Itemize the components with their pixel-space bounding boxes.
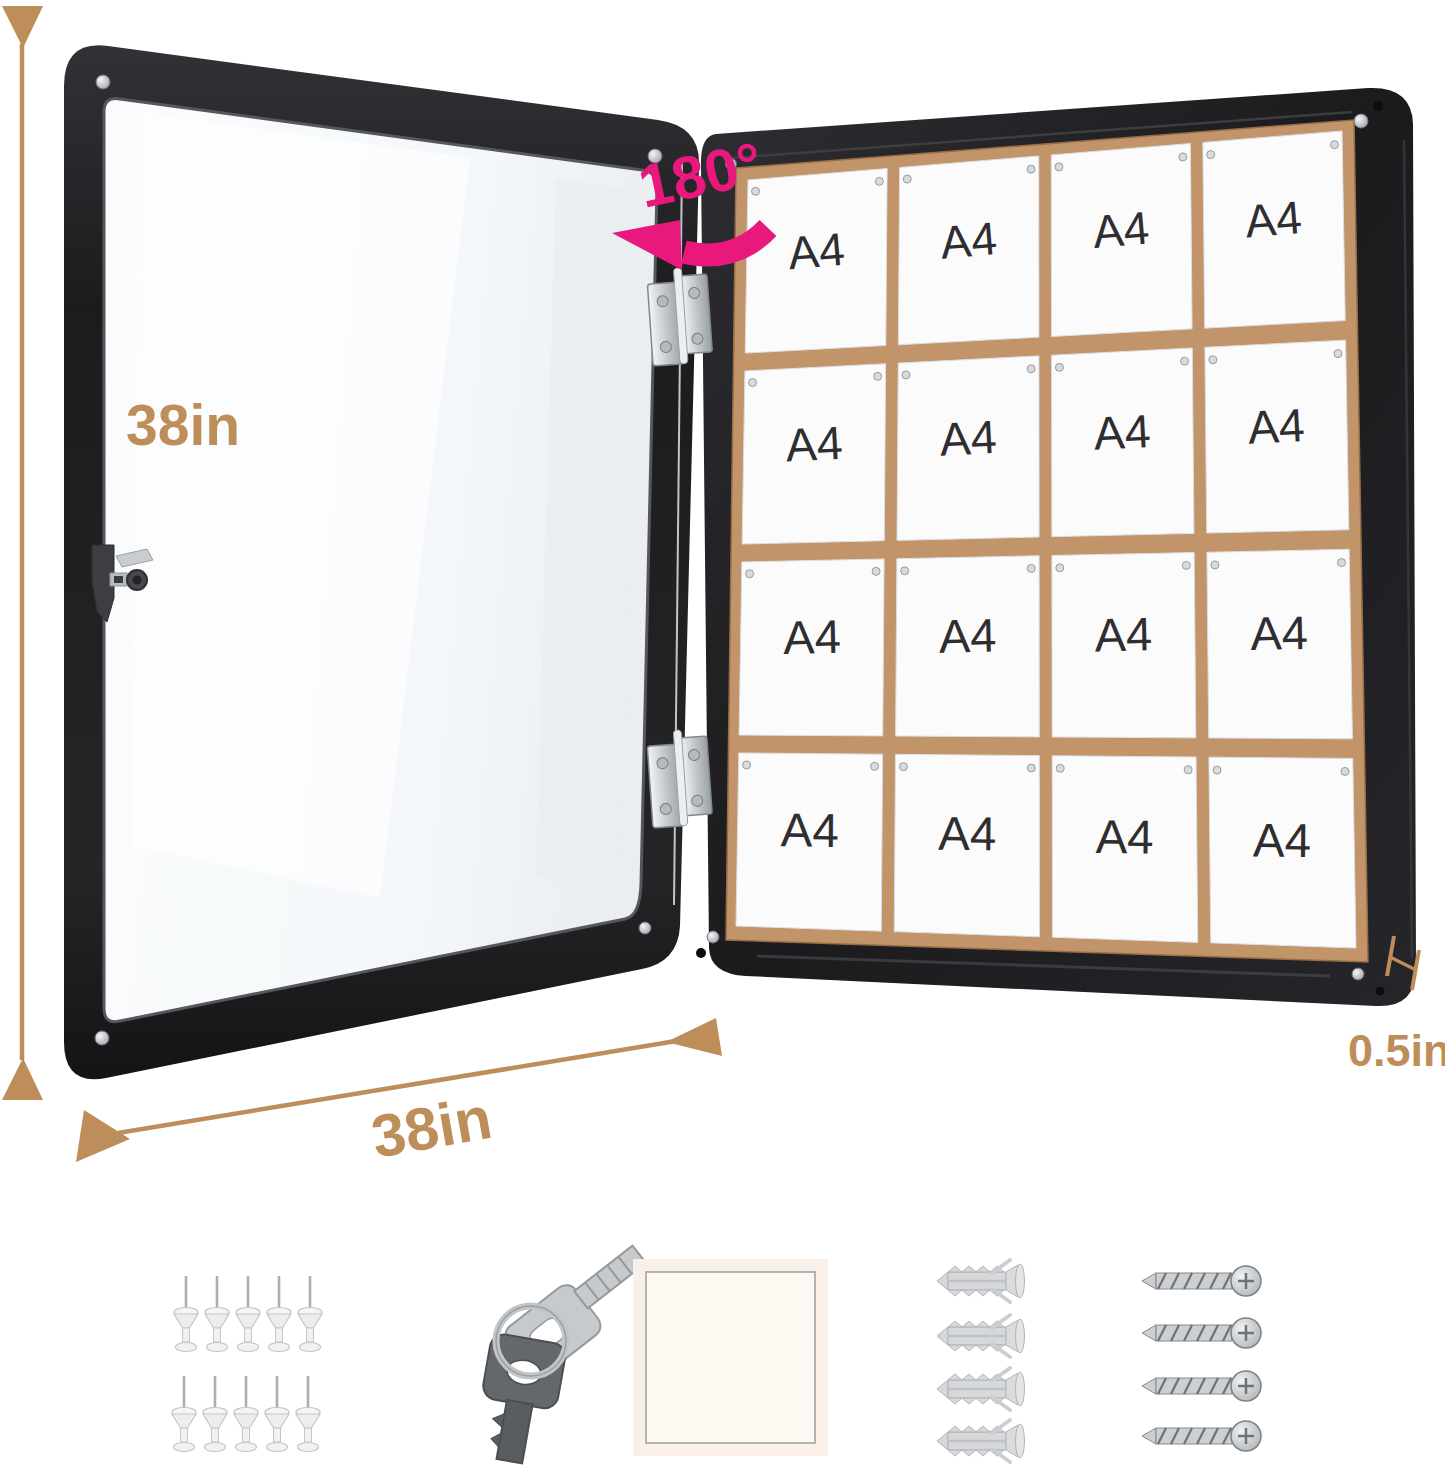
a4-paper-label: A4 [1092, 405, 1151, 460]
paper-pin [1056, 764, 1064, 772]
paper-pin [875, 177, 883, 185]
wall-anchor [937, 1260, 1025, 1302]
product-diagram: A4A4A4A4A4A4A4A4A4A4A4A4A4A4A4A4 180° [0, 0, 1445, 1468]
a4-paper: A4 [894, 754, 1039, 936]
a4-paper-label: A4 [1243, 191, 1303, 247]
height-dimension-arrow [2, 6, 43, 1100]
push-pins [172, 1276, 322, 1452]
arrowhead-left-icon [76, 1110, 130, 1162]
paper-pin [746, 570, 754, 578]
a4-paper: A4 [898, 156, 1039, 345]
a4-paper: A4 [897, 356, 1039, 540]
width-label: 38in [367, 1084, 497, 1171]
a4-paper: A4 [1052, 348, 1194, 537]
hinge-screw [657, 757, 669, 769]
door-rivet [96, 75, 110, 89]
hinge-screw [660, 803, 672, 815]
board-rivet [1352, 968, 1364, 980]
a4-paper: A4 [1205, 340, 1349, 533]
a4-paper-label: A4 [938, 609, 997, 663]
a4-paper-label: A4 [1250, 606, 1309, 660]
push-pin [267, 1276, 291, 1352]
screw [1142, 1318, 1261, 1348]
board-rivet [1354, 114, 1368, 128]
a4-paper-label: A4 [783, 610, 842, 664]
paper-pin [871, 762, 879, 770]
push-pin [298, 1276, 322, 1352]
a4-paper: A4 [736, 753, 883, 931]
push-pin [174, 1276, 198, 1352]
paper-pin [901, 567, 909, 575]
a4-paper: A4 [739, 559, 884, 736]
door-panel [64, 45, 699, 1079]
wall-anchor [937, 1368, 1025, 1410]
key-tooth [491, 1412, 504, 1428]
a4-paper: A4 [1203, 131, 1345, 328]
paper-pin [1184, 766, 1192, 774]
paper-pin [749, 379, 757, 387]
board-panel: A4A4A4A4A4A4A4A4A4A4A4A4A4A4A4A4 [696, 88, 1416, 1006]
wall-anchor [937, 1420, 1025, 1462]
hinge-screw [691, 795, 703, 807]
hinge-screw [688, 287, 700, 299]
product-image: A4A4A4A4A4A4A4A4A4A4A4A4A4A4A4A4 180° [0, 0, 1445, 1468]
key-lower [471, 1332, 567, 1467]
paper-pin [903, 175, 911, 183]
arrowhead-up-icon [2, 6, 43, 48]
a4-paper-label: A4 [1094, 607, 1153, 661]
paper-pin [1207, 151, 1215, 159]
paper-pin [1027, 165, 1035, 173]
board-hole [1376, 987, 1385, 996]
a4-paper-label: A4 [786, 223, 846, 279]
paper-pin [1182, 561, 1190, 569]
screws [1142, 1266, 1261, 1451]
depth-label: 0.5in [1348, 1025, 1445, 1076]
paper-pin [1027, 365, 1035, 373]
a4-paper: A4 [745, 169, 887, 354]
a4-paper: A4 [742, 364, 885, 544]
a4-paper: A4 [1051, 144, 1192, 337]
paper-pin [1209, 356, 1217, 364]
paper-pin [1181, 357, 1189, 365]
square-border [646, 1272, 815, 1443]
a4-paper: A4 [1052, 553, 1196, 738]
board-hole [696, 948, 706, 958]
lock-latch-slot [114, 576, 123, 583]
a4-paper: A4 [896, 556, 1040, 737]
screw [1142, 1421, 1261, 1451]
arrowhead-down-icon [2, 1058, 43, 1100]
board-rivet [707, 931, 719, 943]
paper-pin [1056, 564, 1064, 572]
a4-paper: A4 [1209, 757, 1356, 948]
screw [1142, 1266, 1261, 1296]
push-pin [205, 1276, 229, 1352]
board-hole [1373, 101, 1383, 111]
paper-pin [743, 761, 751, 769]
paper-pin [902, 371, 910, 379]
wall-anchors [937, 1260, 1025, 1462]
hinge-screw [657, 295, 669, 307]
paper-pin [872, 567, 880, 575]
hinge-screw [691, 333, 703, 345]
push-pin [172, 1376, 196, 1452]
push-pin [236, 1276, 260, 1352]
paper-pin [1055, 163, 1063, 171]
push-pin [296, 1376, 320, 1452]
a4-paper-label: A4 [780, 803, 839, 857]
mounting-square [633, 1259, 828, 1456]
paper-pin [899, 763, 907, 771]
paper-pin [1341, 767, 1349, 775]
hinge-screw [660, 341, 672, 353]
a4-paper-label: A4 [938, 807, 997, 861]
push-pin [203, 1376, 227, 1452]
hinge-screw [688, 749, 700, 761]
a4-paper-label: A4 [1253, 813, 1312, 867]
screw [1142, 1371, 1261, 1401]
a4-paper-label: A4 [1091, 202, 1151, 258]
a4-paper-label: A4 [1246, 399, 1305, 454]
paper-pin [1027, 764, 1035, 772]
key-blade [497, 1400, 533, 1464]
paper-pin [1337, 559, 1345, 567]
a4-paper: A4 [1207, 549, 1353, 739]
paper-pin [1330, 141, 1338, 149]
arrowhead-right-icon [666, 1018, 722, 1056]
key-tooth [490, 1432, 501, 1447]
a4-paper-label: A4 [938, 411, 997, 466]
paper-pin [1211, 561, 1219, 569]
push-pin [234, 1376, 258, 1452]
paper-pin [1179, 153, 1187, 161]
paper-pin [1334, 350, 1342, 358]
push-pin [265, 1376, 289, 1452]
a4-paper-label: A4 [1095, 810, 1154, 864]
wall-anchor [937, 1315, 1025, 1357]
door-rivet [95, 1031, 109, 1045]
paper-pin [1055, 363, 1063, 371]
paper-pin [874, 372, 882, 380]
paper-pin [1027, 564, 1035, 572]
a4-paper: A4 [1052, 756, 1198, 943]
paper-pin [1213, 766, 1221, 774]
a4-paper-label: A4 [938, 212, 998, 268]
a4-paper-label: A4 [784, 417, 843, 472]
height-label: 38in [126, 393, 240, 457]
door-rivet [639, 922, 651, 934]
lock-keyhole [133, 576, 142, 585]
